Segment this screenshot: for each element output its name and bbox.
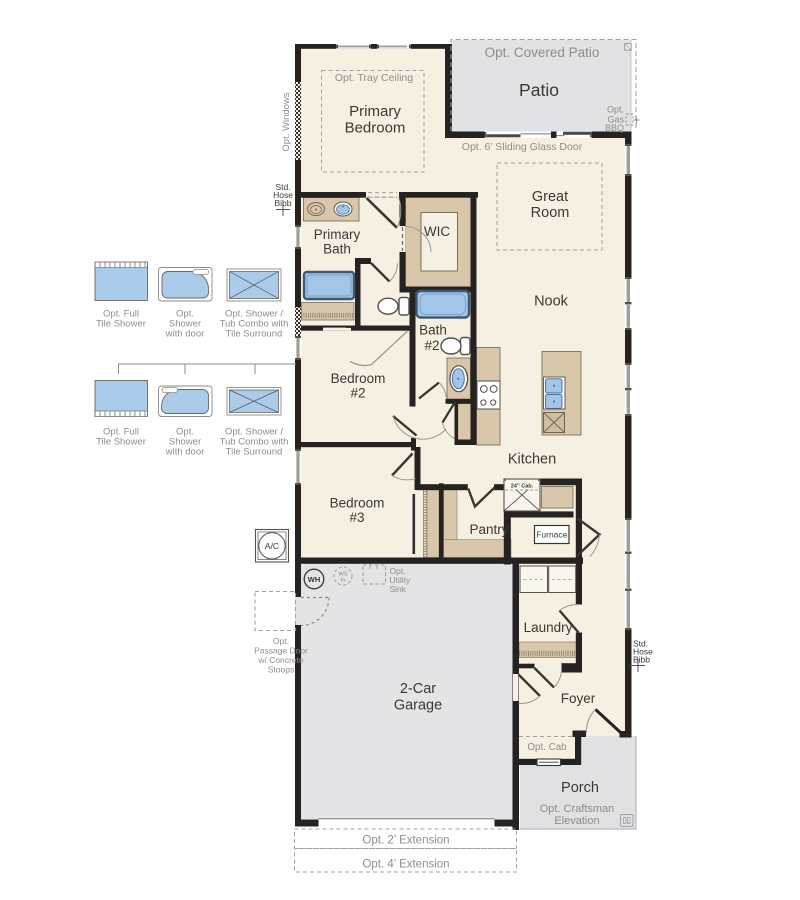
svg-text:BBQ: BBQ [605, 123, 624, 133]
svg-text:Bibb: Bibb [274, 198, 291, 208]
svg-text:Foyer: Foyer [561, 691, 596, 706]
svg-text:Garage: Garage [394, 698, 442, 714]
svg-text:Opt.: Opt. [273, 636, 289, 646]
svg-text:Tile Shower: Tile Shower [96, 319, 146, 330]
svg-text:Elevation: Elevation [554, 815, 599, 827]
svg-text:Sink: Sink [390, 584, 407, 594]
svg-text:24” Cab.: 24” Cab. [511, 484, 534, 490]
svg-text:#2: #2 [424, 338, 439, 353]
svg-text:Tile Shower: Tile Shower [96, 437, 146, 448]
svg-text:Opt. Craftsman: Opt. Craftsman [540, 803, 615, 815]
svg-text:with door: with door [165, 447, 205, 458]
svg-text:Stoops: Stoops [268, 665, 294, 675]
svg-text:WH: WH [308, 575, 321, 584]
svg-text:with door: with door [165, 329, 205, 340]
svg-text:Bedroom: Bedroom [330, 496, 385, 511]
svg-text:Tile Surround: Tile Surround [226, 329, 283, 340]
svg-text:Bath: Bath [323, 242, 351, 257]
svg-text:Opt. 4’ Extension: Opt. 4’ Extension [362, 859, 449, 871]
svg-text:Porch: Porch [561, 780, 599, 796]
svg-text:w/ Concrete: w/ Concrete [257, 655, 304, 665]
svg-text:Bath: Bath [419, 323, 447, 338]
svg-text:Primary: Primary [349, 103, 401, 120]
svg-text:#3: #3 [349, 510, 364, 525]
svg-text:Opt. Tray Ceiling: Opt. Tray Ceiling [335, 72, 413, 84]
svg-text:A/C: A/C [265, 541, 279, 551]
svg-text:WIC: WIC [424, 224, 450, 239]
svg-text:Opt. 6’ Sliding Glass Door: Opt. 6’ Sliding Glass Door [462, 141, 583, 153]
svg-text:Pantry: Pantry [469, 522, 508, 537]
svg-text:2-Car: 2-Car [400, 681, 436, 697]
svg-text:Nook: Nook [534, 294, 569, 310]
svg-text:Great: Great [532, 189, 568, 205]
svg-text:Patio: Patio [519, 80, 559, 100]
svg-text:Laundry: Laundry [524, 620, 573, 635]
svg-text:#2: #2 [350, 386, 365, 401]
svg-text:Bedroom: Bedroom [331, 371, 386, 386]
svg-text:Passage Door: Passage Door [254, 646, 308, 656]
svg-text:Opt. Windows: Opt. Windows [281, 92, 292, 151]
svg-text:Bedroom: Bedroom [345, 120, 406, 137]
svg-text:Opt. 2’ Extension: Opt. 2’ Extension [362, 835, 449, 847]
svg-text:Furnace: Furnace [536, 530, 567, 540]
svg-text:In: In [341, 578, 346, 584]
svg-text:Primary: Primary [314, 227, 361, 242]
svg-text:Opt. Covered Patio: Opt. Covered Patio [485, 45, 600, 60]
svg-text:Tile Surround: Tile Surround [226, 447, 283, 458]
svg-text:Room: Room [531, 205, 570, 221]
svg-text:Opt. Cab: Opt. Cab [527, 742, 567, 753]
svg-text:Bibb: Bibb [633, 655, 650, 665]
svg-text:Kitchen: Kitchen [508, 452, 556, 468]
svg-text:Opt.: Opt. [607, 105, 624, 115]
